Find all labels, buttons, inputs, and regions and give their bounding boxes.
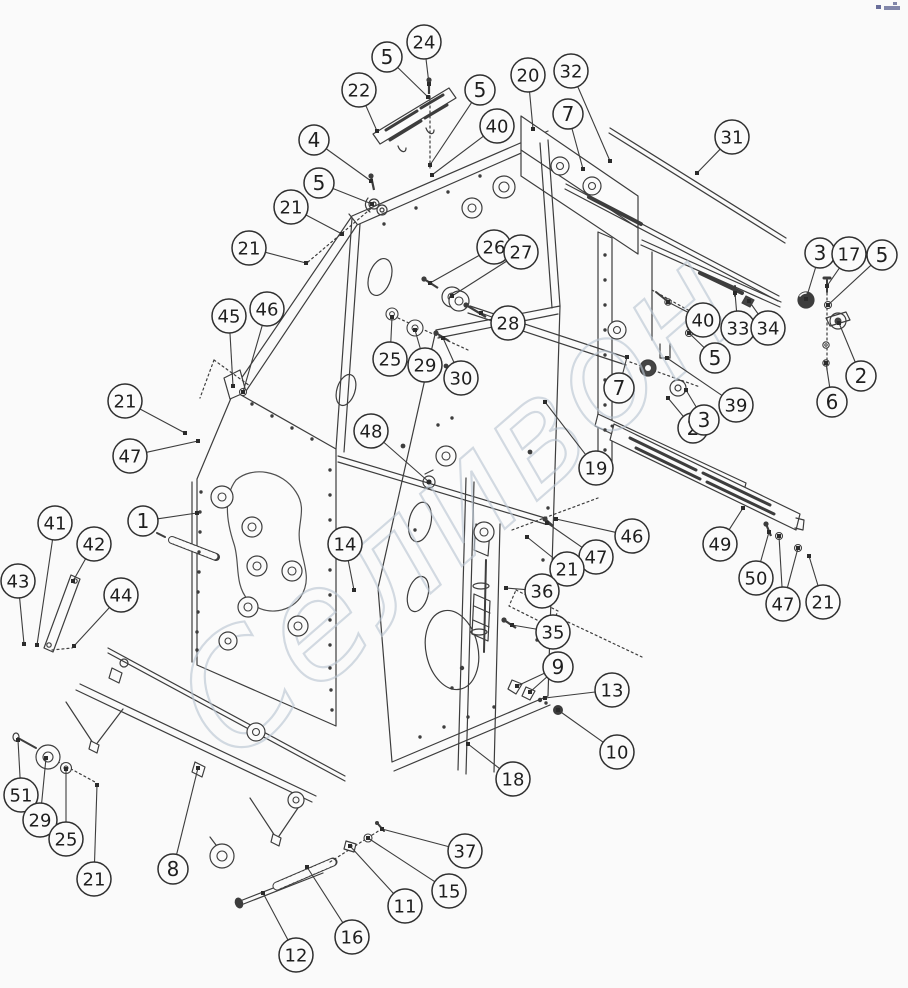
upper-slotted-rail <box>373 88 456 152</box>
callout-number: 9 <box>552 655 565 679</box>
callout-number: 36 <box>531 581 554 602</box>
leader-line <box>95 785 97 862</box>
leader-endpoint <box>340 232 344 236</box>
leader-endpoint <box>195 511 199 515</box>
rivet-dot <box>603 253 606 256</box>
callout-number: 33 <box>727 318 750 339</box>
leader-endpoint <box>64 767 68 771</box>
leader-line <box>382 829 449 847</box>
callout-20: 20 <box>511 58 545 131</box>
leader-line <box>761 532 769 562</box>
leader-endpoint <box>695 171 699 175</box>
callout-number: 47 <box>772 594 795 615</box>
leader-line <box>18 740 20 778</box>
leader-line <box>74 608 109 646</box>
leader-line <box>578 87 610 161</box>
callout-number: 13 <box>601 680 624 701</box>
leader-endpoint <box>380 827 384 831</box>
roller-pulley <box>462 198 482 218</box>
rivet-dot <box>528 450 533 455</box>
callout-number: 41 <box>44 513 67 534</box>
leader-endpoint <box>428 281 432 285</box>
leader-endpoint <box>777 534 781 538</box>
callout-number: 14 <box>334 534 357 555</box>
callout-number: 4 <box>308 128 321 152</box>
leader-endpoint <box>665 356 669 360</box>
callout-number: 45 <box>218 306 241 327</box>
rivet-dot <box>328 468 331 471</box>
leader-endpoint <box>837 321 841 325</box>
rivet-dot <box>436 423 439 426</box>
roller-pulley <box>238 597 258 617</box>
leader-line <box>826 363 830 387</box>
washer <box>823 342 829 348</box>
callout-number: 3 <box>814 241 827 265</box>
roller-pulley <box>247 723 265 741</box>
rivet-dot <box>328 618 331 621</box>
rivet-dot <box>197 570 200 573</box>
callout-number: 8 <box>167 857 180 881</box>
leader-endpoint <box>426 95 430 99</box>
callout-number: 21 <box>83 869 106 890</box>
callout-number: 10 <box>606 742 629 763</box>
rivet-dot <box>329 688 332 691</box>
roller-pulley <box>211 486 233 508</box>
leader-line <box>306 215 342 234</box>
roller-pulley <box>551 157 569 175</box>
roller-pulley <box>210 844 234 868</box>
rivet-dot <box>330 708 333 711</box>
rivet-dot <box>328 493 331 496</box>
callout-number: 32 <box>560 61 583 82</box>
rivet-dot <box>466 715 469 718</box>
rivet-dot <box>541 558 544 561</box>
leader-endpoint <box>231 384 235 388</box>
leader-endpoint <box>733 291 737 295</box>
rivet-dot <box>450 416 453 419</box>
callout-number: 24 <box>413 32 436 53</box>
callout-number: 5 <box>709 346 722 370</box>
leader-line <box>263 893 288 940</box>
rivet-dot <box>270 414 273 417</box>
rivet-dot <box>603 278 606 281</box>
rivet-dot <box>446 190 449 193</box>
callout-47: 47 <box>113 439 200 473</box>
rivet-dot <box>442 725 445 728</box>
callout-number: 28 <box>497 313 520 334</box>
rivet-dot <box>196 610 199 613</box>
callout-number: 29 <box>29 810 52 831</box>
top-right-plate <box>521 116 638 254</box>
callout-number: 5 <box>876 243 889 267</box>
roller-pulley <box>474 522 494 542</box>
rivet-dot <box>328 643 331 646</box>
leader-endpoint <box>804 297 808 301</box>
leader-line <box>430 255 479 283</box>
leader-endpoint <box>479 311 483 315</box>
leader-endpoint <box>44 756 48 760</box>
callout-number: 21 <box>280 197 303 218</box>
parts-diagram-canvas: Селивон 24522540203273145212126272845462… <box>0 0 908 988</box>
callout-42: 42 <box>71 527 111 583</box>
callout-number: 1 <box>137 509 150 533</box>
rivet-dot <box>414 206 417 209</box>
rivet-dot <box>450 686 453 689</box>
leader-line <box>545 692 595 698</box>
callout-number: 51 <box>10 785 33 806</box>
callout-number: 39 <box>725 395 748 416</box>
callout-number: 42 <box>83 534 106 555</box>
leader-line <box>158 513 197 519</box>
rivet-dot <box>195 630 198 633</box>
callout-12: 12 <box>261 891 313 972</box>
callout-number: 19 <box>585 458 608 479</box>
leader-endpoint <box>504 586 508 590</box>
leader-endpoint <box>826 303 830 307</box>
callout-26: 26 <box>428 230 511 285</box>
leader-endpoint <box>22 642 26 646</box>
callout-5: 5 <box>304 168 374 206</box>
callout-16: 16 <box>305 865 369 954</box>
leader-endpoint <box>366 836 370 840</box>
leader-line <box>333 189 372 204</box>
leader-endpoint <box>35 643 39 647</box>
callout-number: 50 <box>745 568 768 589</box>
callout-number: 48 <box>360 421 383 442</box>
callout-1: 1 <box>128 506 199 536</box>
leader-endpoint <box>543 400 547 404</box>
callout-number: 11 <box>394 896 417 917</box>
callout-number: 5 <box>313 171 326 195</box>
leader-endpoint <box>525 535 529 539</box>
leader-endpoint <box>747 299 751 303</box>
leader-endpoint <box>304 261 308 265</box>
callout-number: 35 <box>542 622 565 643</box>
leader-line <box>398 67 428 97</box>
callout-22: 22 <box>342 73 379 133</box>
callout-number: 21 <box>238 238 261 259</box>
leader-endpoint <box>71 579 75 583</box>
leader-line <box>147 441 198 452</box>
rivet-dot <box>460 666 464 670</box>
tension-rod-and-spring <box>234 821 384 909</box>
rivet-dot <box>603 448 606 451</box>
rivet-dot <box>199 490 202 493</box>
rivet-dot <box>290 426 293 429</box>
roller-pulley <box>288 792 304 808</box>
left-strap-link <box>44 575 80 652</box>
leader-endpoint <box>545 521 549 525</box>
roller-pulley <box>608 321 626 339</box>
leader-endpoint <box>413 328 417 332</box>
leader-endpoint <box>687 331 691 335</box>
leader-endpoint <box>305 865 309 869</box>
leader-line <box>20 598 24 644</box>
rivet-dot <box>401 444 406 449</box>
leader-line <box>350 846 394 893</box>
rivet-dot <box>413 528 416 531</box>
leader-endpoint <box>369 179 373 183</box>
callout-50: 50 <box>739 530 773 595</box>
rivet-dot <box>310 437 313 440</box>
callout-51: 51 <box>4 738 38 812</box>
leader-endpoint <box>183 431 187 435</box>
leader-endpoint <box>261 891 265 895</box>
callout-8: 8 <box>158 766 200 884</box>
callout-21: 21 <box>232 231 308 265</box>
callout-number: 43 <box>7 571 30 592</box>
exploded-view-drawing: Селивон 24522540203273145212126272845462… <box>0 0 908 988</box>
callout-number: 30 <box>450 368 473 389</box>
callout-number: 2 <box>855 364 868 388</box>
leader-endpoint <box>531 127 535 131</box>
callout-6: 6 <box>817 361 847 417</box>
callout-number: 25 <box>379 349 402 370</box>
callout-21: 21 <box>108 384 187 435</box>
rivet-dot <box>492 705 495 708</box>
callout-number: 40 <box>486 116 509 137</box>
leader-line <box>787 548 798 588</box>
callout-37: 37 <box>380 827 482 868</box>
leader-line <box>556 519 615 532</box>
callout-number: 34 <box>757 318 780 339</box>
leader-line <box>265 252 306 263</box>
corner-watermark <box>876 2 900 10</box>
callout-number: 31 <box>721 127 744 148</box>
callout-number: 21 <box>812 592 835 613</box>
callout-number: 21 <box>114 391 137 412</box>
leader-line <box>73 559 86 581</box>
leader-endpoint <box>625 355 629 359</box>
rivet-dot <box>603 303 606 306</box>
leader-endpoint <box>796 546 800 550</box>
callout-number: 29 <box>414 355 437 376</box>
leader-line <box>558 710 603 742</box>
leader-endpoint <box>196 439 200 443</box>
leader-endpoint <box>608 159 612 163</box>
leader-endpoint <box>450 294 454 298</box>
callout-number: 5 <box>381 45 394 69</box>
leader-endpoint <box>543 696 547 700</box>
leader-line <box>839 323 855 362</box>
callout-49: 49 <box>703 506 745 561</box>
leader-endpoint <box>95 783 99 787</box>
callout-number: 40 <box>692 310 715 331</box>
callout-10: 10 <box>556 708 634 769</box>
leader-line <box>368 838 435 882</box>
rivet-dot <box>603 353 606 356</box>
leader-endpoint <box>528 690 532 694</box>
roller-pulley <box>436 446 456 466</box>
leader-line <box>37 540 53 645</box>
leader-endpoint <box>352 588 356 592</box>
leader-endpoint <box>554 517 558 521</box>
leader-endpoint <box>515 684 519 688</box>
leader-line <box>432 136 483 175</box>
callout-number: 5 <box>474 78 487 102</box>
rivet-dot <box>382 222 385 225</box>
leader-endpoint <box>430 173 434 177</box>
callout-40: 40 <box>430 109 514 177</box>
callout-number: 7 <box>562 102 575 126</box>
rivet-dot <box>538 698 542 702</box>
callout-number: 46 <box>256 299 279 320</box>
leader-line <box>391 317 392 342</box>
callout-number: 17 <box>838 244 861 265</box>
callout-number: 6 <box>826 390 839 414</box>
rivet-dot <box>418 735 421 738</box>
callout-number: 25 <box>55 829 78 850</box>
rivet-dot <box>195 648 198 651</box>
leader-endpoint <box>375 129 379 133</box>
leader-endpoint <box>510 623 514 627</box>
rivet-dot <box>328 518 331 521</box>
callout-25: 25 <box>373 315 407 376</box>
leader-line <box>140 409 185 433</box>
leader-endpoint <box>348 844 352 848</box>
callout-number: 12 <box>285 945 308 966</box>
leader-endpoint <box>466 742 470 746</box>
roller-pulley <box>288 616 308 636</box>
callout-18: 18 <box>466 742 530 796</box>
leader-endpoint <box>581 167 585 171</box>
leader-endpoint <box>427 480 431 484</box>
callout-31: 31 <box>695 120 749 175</box>
callout-11: 11 <box>348 844 422 923</box>
leader-line <box>366 106 377 131</box>
leader-line <box>779 536 782 587</box>
rivet-dot <box>328 666 331 669</box>
leader-endpoint <box>824 361 828 365</box>
leader-endpoint <box>72 644 76 648</box>
leader-line <box>729 508 743 530</box>
leader-endpoint <box>666 300 670 304</box>
leader-endpoint <box>741 506 745 510</box>
roller-pulley <box>282 561 302 581</box>
leader-endpoint <box>767 530 771 534</box>
leader-endpoint <box>825 284 829 288</box>
leader-line <box>697 149 720 173</box>
roller-pulley <box>247 556 267 576</box>
leader-endpoint <box>666 396 670 400</box>
leader-endpoint <box>427 82 431 86</box>
leader-line <box>307 867 343 923</box>
callout-2: 2 <box>837 321 876 391</box>
leader-endpoint <box>556 708 560 712</box>
callout-number: 15 <box>438 881 461 902</box>
callout-44: 44 <box>72 578 138 648</box>
callout-number: 3 <box>698 408 711 432</box>
rivet-dot <box>544 701 547 704</box>
leader-endpoint <box>16 738 20 742</box>
callout-number: 46 <box>621 526 644 547</box>
callout-number: 20 <box>517 65 540 86</box>
rivet-dot <box>603 328 606 331</box>
callout-24: 24 <box>407 25 441 86</box>
callout-number: 18 <box>502 769 525 790</box>
callout-number: 16 <box>341 927 364 948</box>
callout-number: 26 <box>483 237 506 258</box>
callout-21: 21 <box>806 554 840 619</box>
leader-endpoint <box>196 766 200 770</box>
leader-line <box>809 556 818 586</box>
callout-number: 49 <box>709 534 732 555</box>
rivet-dot <box>603 428 606 431</box>
leader-endpoint <box>370 202 374 206</box>
callout-43: 43 <box>1 564 35 646</box>
callout-3: 3 <box>804 238 835 301</box>
rivet-dot <box>328 568 331 571</box>
callout-number: 47 <box>119 446 142 467</box>
callout-number: 7 <box>613 376 626 400</box>
roller-pulley <box>583 177 601 195</box>
roller-pulley <box>242 517 262 537</box>
rivet-dot <box>478 174 481 177</box>
rivet-dot <box>196 590 199 593</box>
leader-line <box>177 768 198 854</box>
callout-number: 27 <box>510 242 533 263</box>
leader-endpoint <box>684 388 688 392</box>
roller-pulley <box>219 632 237 650</box>
roller-pulley <box>493 176 515 198</box>
rivet-dot <box>328 593 331 596</box>
leader-endpoint <box>807 554 811 558</box>
callout-number: 44 <box>110 585 133 606</box>
leader-endpoint <box>241 390 245 394</box>
callout-number: 37 <box>454 841 477 862</box>
rivet-dot <box>198 530 201 533</box>
rivet-dot <box>197 550 200 553</box>
rivet-dot <box>250 402 253 405</box>
leader-endpoint <box>390 315 394 319</box>
rivet-dot <box>603 403 606 406</box>
callout-number: 47 <box>585 547 608 568</box>
leader-endpoint <box>428 163 432 167</box>
callout-number: 22 <box>348 80 371 101</box>
callout-21: 21 <box>274 190 344 236</box>
leader-endpoint <box>441 336 445 340</box>
rivet-dot <box>546 506 549 509</box>
callout-number: 21 <box>556 559 579 580</box>
